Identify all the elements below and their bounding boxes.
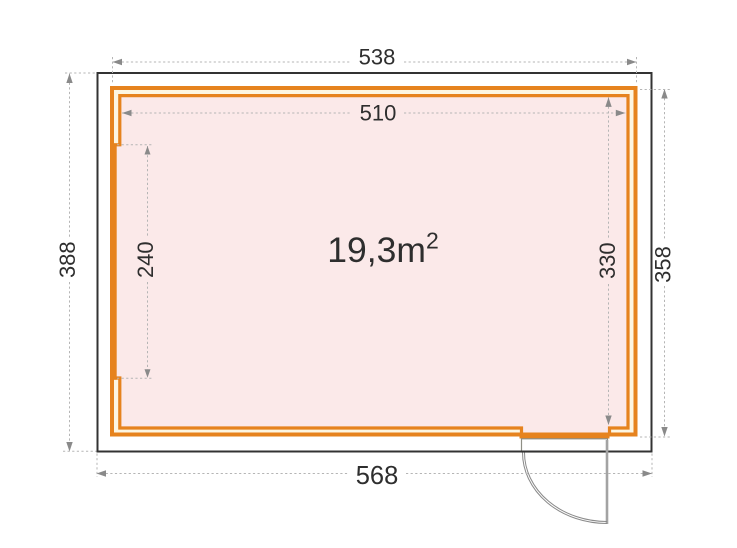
svg-text:19,3m2: 19,3m2 bbox=[327, 228, 438, 271]
svg-text:330: 330 bbox=[595, 242, 620, 279]
svg-text:568: 568 bbox=[356, 462, 399, 490]
svg-text:538: 538 bbox=[359, 45, 396, 70]
svg-text:388: 388 bbox=[55, 241, 80, 278]
svg-text:358: 358 bbox=[650, 246, 675, 283]
svg-text:510: 510 bbox=[360, 101, 397, 126]
svg-text:240: 240 bbox=[133, 241, 158, 278]
